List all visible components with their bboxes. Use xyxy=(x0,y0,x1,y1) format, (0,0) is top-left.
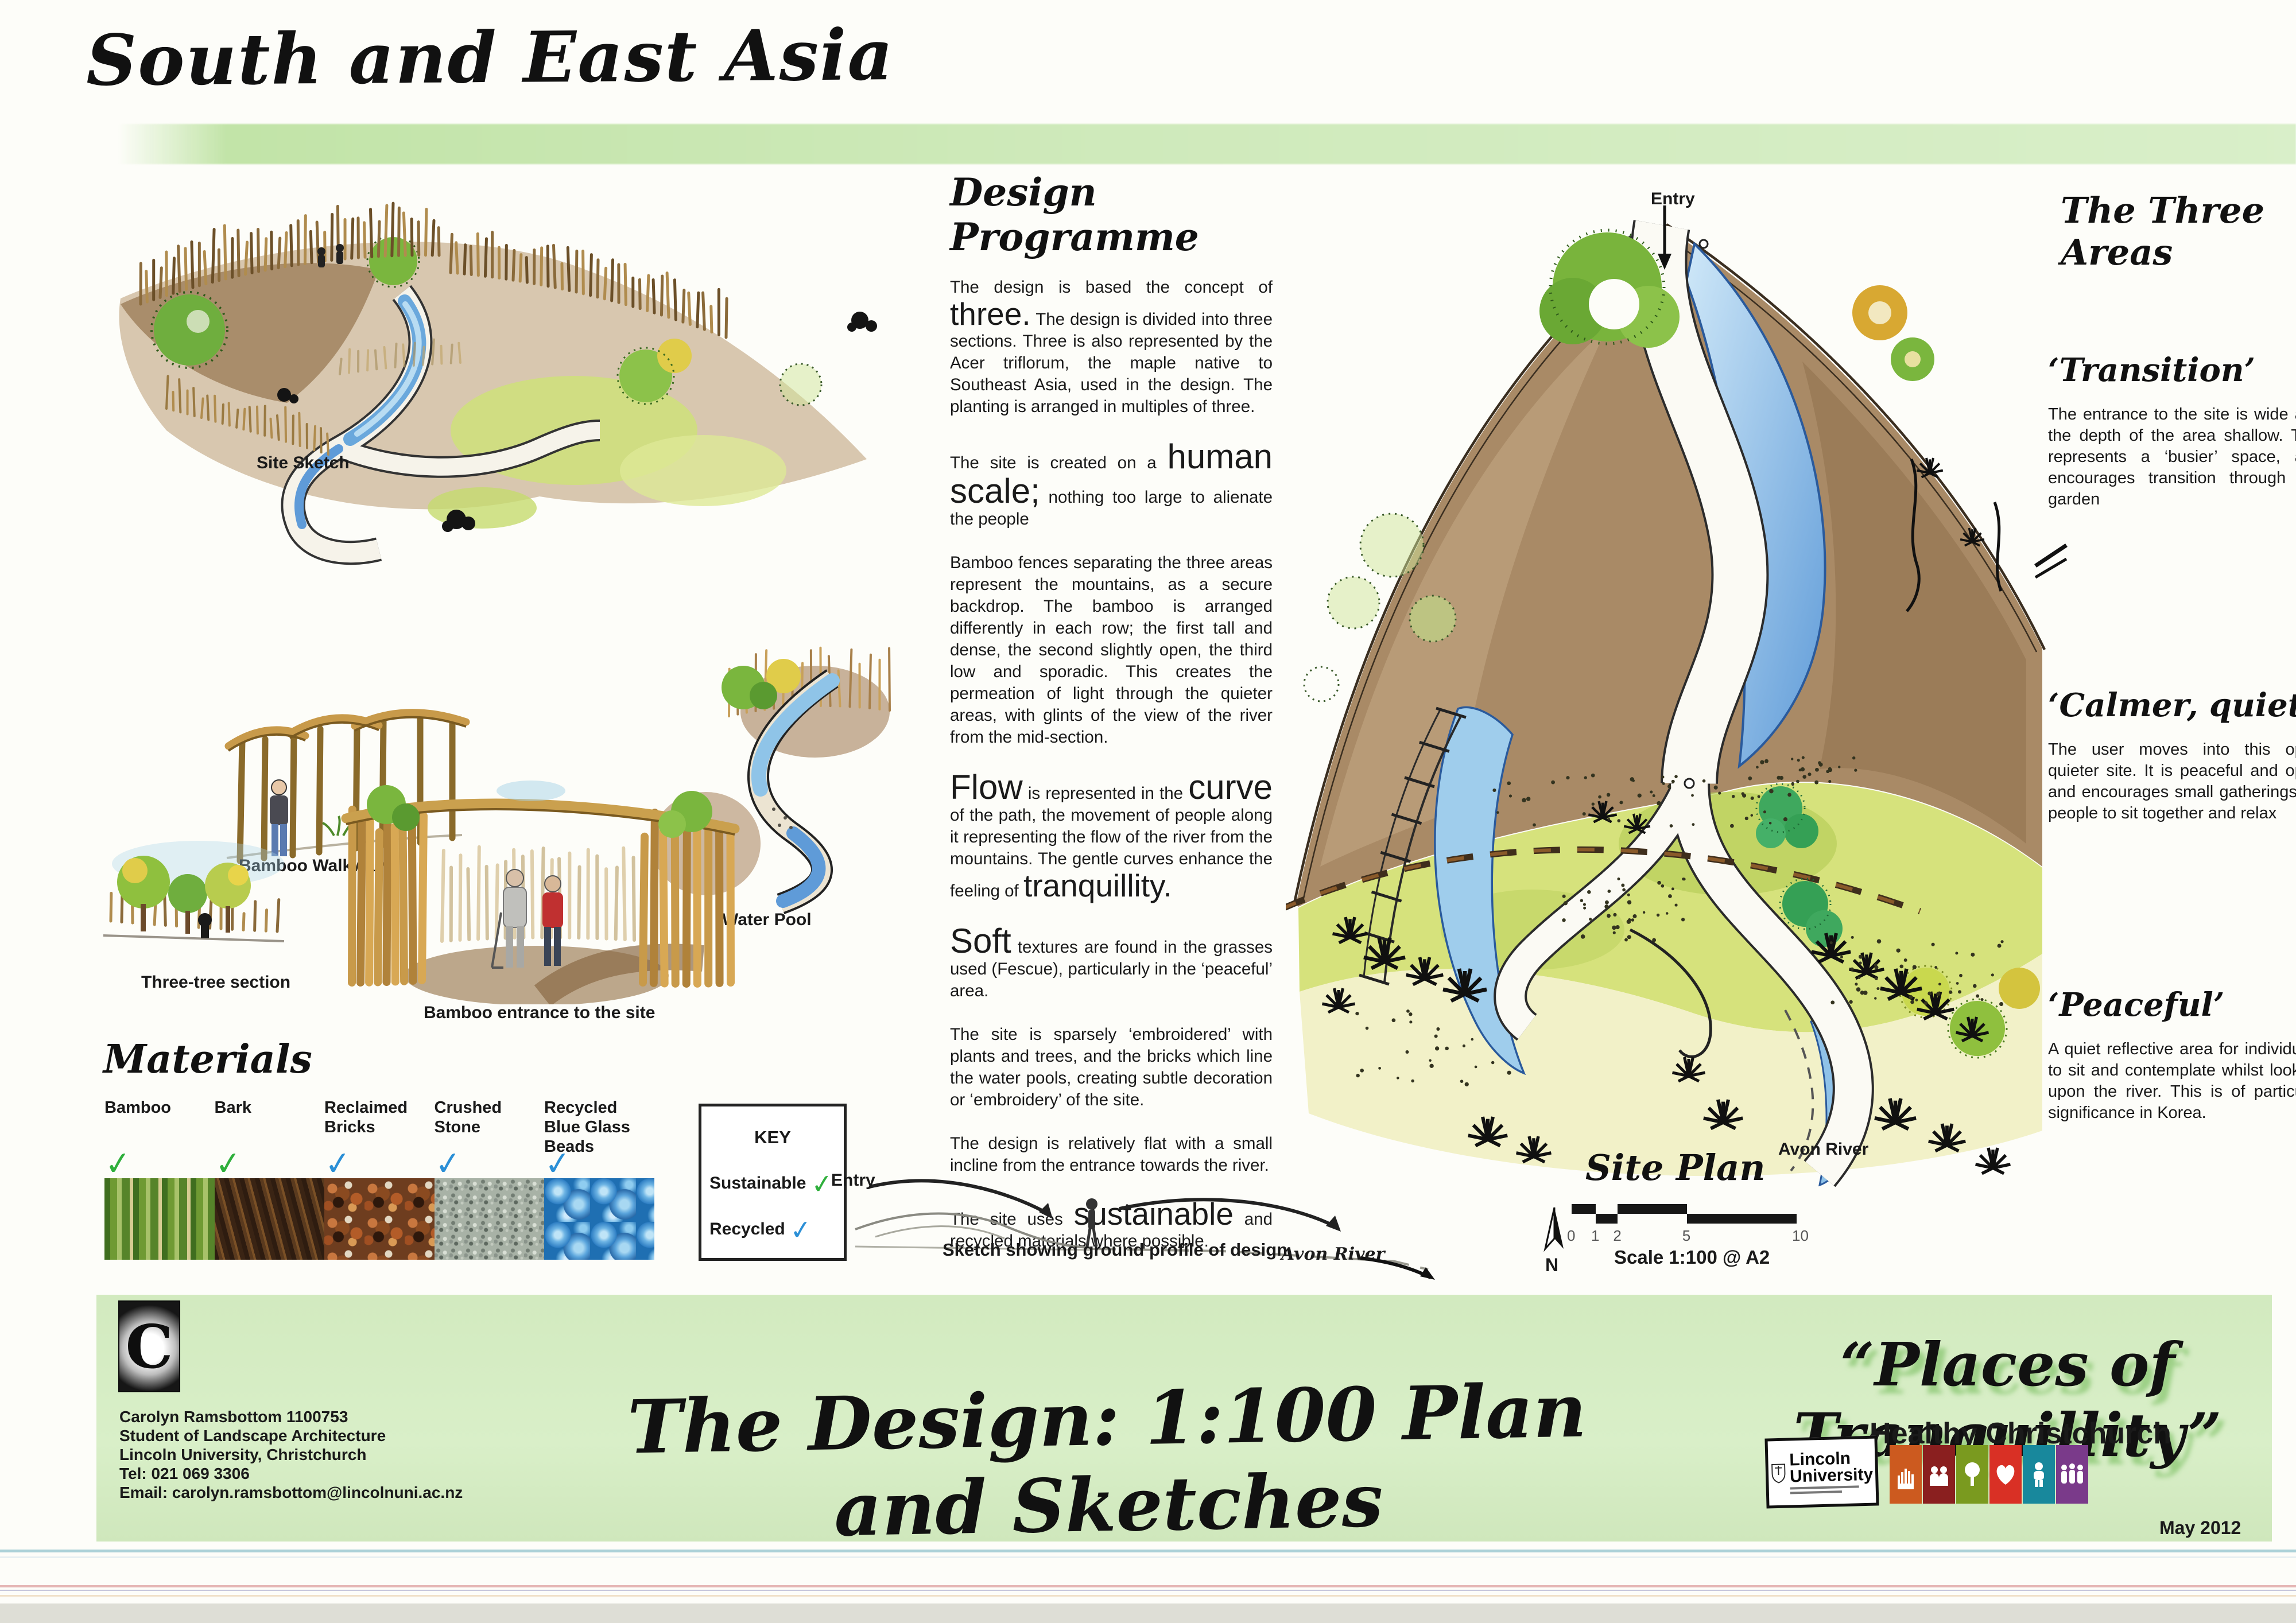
bamboo-stick xyxy=(193,388,195,416)
bamboo-stick xyxy=(327,434,328,455)
design-programme-heading: Design Programme xyxy=(950,170,1273,259)
bamboo-stick xyxy=(719,825,720,983)
logo-smallprint-bar xyxy=(1790,1485,1859,1489)
bamboo-stick xyxy=(468,869,469,939)
dp-paragraph-1: The design is based the concept of three… xyxy=(950,277,1273,418)
dp-paragraph-6: The site is sparsely ‘embroidered’ with … xyxy=(950,1024,1273,1111)
bamboo-stick xyxy=(385,205,387,256)
bamboo-stick xyxy=(661,276,662,315)
bamboo-stick xyxy=(160,268,161,298)
bamboo-stick xyxy=(697,822,697,983)
scan-strip xyxy=(0,1603,2296,1623)
bamboo-stick xyxy=(166,376,168,409)
bamboo-stick xyxy=(395,827,395,982)
bamboo-stick xyxy=(451,234,452,273)
bamboo-stick xyxy=(625,264,626,304)
healthy-christchurch-tiles xyxy=(1890,1445,2088,1504)
bamboo-stick xyxy=(258,229,259,271)
bamboo-stick xyxy=(238,230,239,276)
material-photo xyxy=(544,1178,654,1260)
bamboo-stick xyxy=(340,359,342,374)
bamboo-stick xyxy=(299,413,300,446)
bamboo-stick xyxy=(257,407,258,434)
children-icon xyxy=(2057,1459,2087,1489)
dp-big-flow: Flow xyxy=(950,768,1023,806)
profile-caption: Sketch showing ground profile of design xyxy=(943,1240,1287,1260)
bamboo-stick xyxy=(726,298,727,337)
header-green-band xyxy=(118,124,2296,164)
bamboo-stick xyxy=(604,268,606,299)
bamboo-stick xyxy=(478,847,479,939)
author-line: Carolyn Ramsbottom 1100753 xyxy=(119,1407,463,1426)
bamboo-stick xyxy=(332,214,332,260)
bamboo-stick xyxy=(179,246,180,292)
sustainable-check-icon: ✓ xyxy=(213,1135,327,1184)
bamboo-stick xyxy=(165,896,166,926)
bamboo-stick xyxy=(311,231,312,262)
dp-paragraph-5: Soft textures are found in the grasses u… xyxy=(950,924,1273,1002)
key-title: KEY xyxy=(701,1127,844,1148)
bamboo-stick xyxy=(697,293,699,327)
bamboo-stick xyxy=(265,239,266,270)
bamboo-stick xyxy=(352,219,353,258)
bamboo-stick xyxy=(598,260,598,297)
bamboo-stick xyxy=(459,343,460,363)
bamboo-stick xyxy=(562,263,563,289)
material-name: Crushed Stone xyxy=(435,1098,526,1140)
bamboo-stick xyxy=(623,848,625,939)
scan-line xyxy=(0,1556,2296,1558)
bamboo-stick xyxy=(442,851,444,941)
bamboo-stick xyxy=(255,902,255,930)
bamboo-stick xyxy=(689,293,691,324)
hc-tile-heart xyxy=(1989,1445,2022,1504)
bamboo-stick xyxy=(568,247,569,290)
scan-line xyxy=(0,1595,2296,1597)
bamboo-entrance-label: Bamboo entrance to the site xyxy=(424,1003,655,1023)
bamboo-stick xyxy=(870,655,871,708)
bamboo-stick xyxy=(687,820,687,984)
bamboo-stick xyxy=(643,837,645,983)
bamboo-stick xyxy=(478,234,478,275)
three-areas-heading: The Three Areas xyxy=(2061,189,2296,273)
bamboo-stick xyxy=(464,245,466,274)
university-name-line2: University xyxy=(1790,1466,1874,1485)
bamboo-stick xyxy=(683,290,684,323)
hand-icon xyxy=(1891,1459,1921,1489)
bamboo-stick xyxy=(418,222,419,255)
bamboo-stick xyxy=(229,403,230,425)
bamboo-stick xyxy=(243,409,245,430)
bamboo-stick xyxy=(378,832,379,982)
site-plan-title: Site Plan xyxy=(1585,1147,1765,1189)
material-name: Recycled Blue Glass Beads xyxy=(544,1098,636,1140)
bamboo-stick xyxy=(314,426,315,451)
materials-heading: Materials xyxy=(103,1036,312,1082)
material-name: Bamboo xyxy=(104,1098,196,1140)
bamboo-stick xyxy=(293,416,293,444)
bamboo-stick xyxy=(179,379,180,412)
area-title: ‘Peaceful’ xyxy=(2048,986,2296,1024)
material-column-bark: Bark✓ xyxy=(215,1098,325,1260)
bamboo-stick xyxy=(369,821,370,982)
profile-entry-label: Entry xyxy=(831,1171,875,1190)
bamboo-stick xyxy=(456,243,457,273)
bamboo-stick xyxy=(485,239,486,277)
university-shield-icon xyxy=(1770,1457,1786,1490)
bamboo-stick xyxy=(224,226,226,279)
bamboo-stick xyxy=(839,671,840,706)
bamboo-stick xyxy=(663,832,665,984)
bamboo-stick xyxy=(653,280,654,313)
scale-segment xyxy=(1618,1204,1686,1214)
bamboo-stick xyxy=(246,242,247,274)
author-line: Lincoln University, Christchurch xyxy=(119,1445,463,1464)
bamboo-stick xyxy=(321,428,321,452)
key-sustainable-row: Sustainable ✓ xyxy=(709,1168,833,1199)
design-programme-column: Design Programme The design is based the… xyxy=(950,170,1273,1274)
bamboo-stick xyxy=(215,396,215,422)
bamboo-stick xyxy=(402,826,404,981)
bamboo-stick xyxy=(889,648,890,710)
bamboo-stick xyxy=(576,251,577,292)
area-section-2: ‘Calmer, quiet’The user moves into this … xyxy=(2048,686,2296,824)
bamboo-stick xyxy=(166,252,167,296)
bamboo-stick xyxy=(654,813,655,983)
plan-entry-label: Entry xyxy=(1651,189,1695,209)
recycled-check-icon: ✓ xyxy=(323,1135,436,1184)
bamboo-stick xyxy=(375,350,377,369)
bamboo-stick xyxy=(111,893,111,921)
hc-tile-hand xyxy=(1890,1445,1922,1504)
bamboo-stick xyxy=(439,228,439,255)
bamboo-stick xyxy=(532,851,533,938)
bamboo-stick xyxy=(236,410,238,428)
bamboo-stick xyxy=(185,249,187,289)
bamboo-stick xyxy=(579,867,579,938)
bamboo-stick xyxy=(201,398,203,418)
bamboo-stick xyxy=(285,232,286,266)
avon-river-label: Avon River xyxy=(1778,1140,1868,1159)
scan-line xyxy=(0,1590,2296,1591)
bamboo-stick xyxy=(278,238,280,268)
site-sketch-drawing xyxy=(80,184,936,585)
author-logo-letter: C xyxy=(126,1311,173,1382)
spiky-plant xyxy=(1976,1148,2011,1174)
site-sketch-label: Site Sketch xyxy=(257,453,350,473)
logo-smallprint-bar xyxy=(1790,1490,1842,1494)
key-recycled-row: Recycled ✓ xyxy=(709,1214,812,1245)
date-label: May 2012 xyxy=(2159,1517,2241,1539)
bamboo-stick xyxy=(541,248,542,285)
ground-profile-drawing xyxy=(821,1159,1458,1297)
bamboo-stick xyxy=(451,345,452,363)
area-section-3: ‘Peaceful’A quiet reflective area for in… xyxy=(2048,986,2296,1124)
scale-tick-label: 1 xyxy=(1591,1227,1599,1245)
bamboo-stick xyxy=(298,221,298,265)
bamboo-stick xyxy=(146,271,148,302)
author-line: Student of Landscape Architecture xyxy=(119,1426,463,1445)
bamboo-stick xyxy=(291,226,292,266)
author-logo: C xyxy=(118,1300,180,1392)
material-name: Reclaimed Bricks xyxy=(324,1098,416,1140)
scale-tick-label: 5 xyxy=(1682,1227,1690,1245)
bamboo-stick xyxy=(266,910,266,931)
bamboo-stick xyxy=(277,416,279,440)
bamboo-stick xyxy=(674,280,676,320)
lincoln-university-logo: Lincoln University xyxy=(1764,1435,1879,1508)
bamboo-stick xyxy=(432,340,434,364)
bamboo-stick xyxy=(425,209,426,255)
bamboo-stick xyxy=(204,251,206,284)
bamboo-stick xyxy=(305,216,305,264)
north-n-label: N xyxy=(1545,1255,1558,1276)
site-plan-drawing xyxy=(1286,189,2049,1199)
bamboo-stick xyxy=(703,293,705,329)
bamboo-stick xyxy=(285,407,286,442)
dp-big-curve: curve xyxy=(1188,768,1273,806)
bamboo-stick xyxy=(378,222,379,257)
bamboo-stick xyxy=(432,220,434,255)
dp-paragraph-2: The site is created on a human scale; no… xyxy=(950,440,1273,530)
bamboo-stick xyxy=(471,246,471,274)
material-photo xyxy=(324,1178,435,1260)
bamboo-stick xyxy=(272,232,272,269)
dp-big-three: three. xyxy=(950,296,1031,332)
scale-segment xyxy=(1572,1204,1596,1214)
bamboo-stick xyxy=(349,350,350,373)
area-body: The user moves into this open quieter si… xyxy=(2048,739,2296,824)
material-column-bamboo: Bamboo✓ xyxy=(104,1098,215,1260)
bamboo-stick xyxy=(591,255,592,296)
bamboo-stick xyxy=(243,914,244,930)
three-tree-label: Three-tree section xyxy=(141,973,290,992)
area-body: A quiet reflective area for individuals … xyxy=(2048,1039,2296,1124)
author-line: Email: carolyn.ramsbottom@lincolnuni.ac.… xyxy=(119,1483,463,1502)
bamboo-stick xyxy=(497,865,498,938)
bamboo-stick xyxy=(647,275,649,310)
bamboo-stick xyxy=(371,209,372,257)
bamboo-stick xyxy=(583,251,584,293)
scale-segment xyxy=(1596,1214,1618,1224)
key-sustainable-label: Sustainable xyxy=(709,1174,806,1193)
bamboo-stick xyxy=(384,347,386,368)
bamboo-stick xyxy=(667,273,669,317)
material-photo xyxy=(215,1178,325,1260)
sustainable-check-icon: ✓ xyxy=(103,1135,216,1184)
north-arrow-icon xyxy=(1534,1204,1574,1256)
family-icon xyxy=(1924,1459,1954,1489)
author-block: Carolyn Ramsbottom 1100753Student of Lan… xyxy=(119,1407,463,1502)
bamboo-stick xyxy=(422,816,424,980)
bamboo-stick xyxy=(399,208,400,255)
recycled-check-icon: ✓ xyxy=(433,1135,546,1184)
bamboo-stick xyxy=(212,230,214,282)
bamboo-stick xyxy=(441,346,442,364)
material-column-reclaimed-bricks: Reclaimed Bricks✓ xyxy=(324,1098,435,1260)
bamboo-stick xyxy=(392,203,393,256)
material-column-crushed-stone: Crushed Stone✓ xyxy=(435,1098,545,1260)
bamboo-stick xyxy=(173,258,174,293)
bamboo-stick xyxy=(414,343,415,366)
area-body: The entrance to the site is wide and the… xyxy=(2048,404,2296,510)
bamboo-entrance-drawing xyxy=(336,769,743,1004)
bamboo-stick xyxy=(460,855,460,940)
scale-tick-label: 2 xyxy=(1613,1227,1621,1245)
bamboo-stick xyxy=(412,814,413,981)
area-section-1: ‘Transition’The entrance to the site is … xyxy=(2048,351,2296,510)
bamboo-stick xyxy=(360,814,362,983)
bamboo-stick xyxy=(387,821,388,982)
dp-big-soft: Soft xyxy=(950,922,1011,960)
bamboo-stick xyxy=(506,245,507,279)
dp-paragraph-4: Flow is represented in the curve of the … xyxy=(950,770,1273,902)
poster-scan: South and East Asia xyxy=(0,0,2296,1623)
bamboo-stick xyxy=(553,245,555,288)
bamboo-stick xyxy=(403,344,404,366)
bamboo-stick xyxy=(192,242,193,288)
bamboo-stick xyxy=(364,223,365,257)
bamboo-stick xyxy=(277,900,279,931)
heart-icon xyxy=(1991,1459,2020,1489)
bamboo-stick xyxy=(173,392,174,410)
bamboo-stick xyxy=(675,833,676,984)
bamboo-stick xyxy=(513,250,514,280)
bamboo-stick xyxy=(639,279,640,308)
footer-main-title: The Design: 1:100 Plan and Sketches xyxy=(544,1366,1672,1558)
bamboo-stick xyxy=(548,246,548,286)
bamboo-stick xyxy=(616,867,617,939)
scan-line xyxy=(0,1550,2296,1552)
hc-tile-children xyxy=(2056,1445,2088,1504)
tree-icon xyxy=(1957,1459,1987,1489)
hc-tile-tree xyxy=(1956,1445,1988,1504)
bamboo-stick xyxy=(352,810,352,983)
bamboo-stick xyxy=(520,255,521,281)
scale-tick-label: 10 xyxy=(1792,1227,1809,1245)
bamboo-stick xyxy=(404,213,405,255)
scan-line xyxy=(0,1585,2296,1587)
bamboo-stick xyxy=(207,395,208,420)
three-tree-drawing xyxy=(95,829,296,964)
profile-avon-river-label: Avon River xyxy=(1281,1244,1384,1264)
author-line: Tel: 021 069 3306 xyxy=(119,1464,463,1483)
key-recycled-label: Recycled xyxy=(709,1220,785,1238)
page-title: South and East Asia xyxy=(86,13,895,102)
hc-tile-family xyxy=(1923,1445,1955,1504)
bamboo-stick xyxy=(423,347,424,365)
bamboo-stick xyxy=(412,219,412,255)
bamboo-stick xyxy=(251,234,252,273)
bamboo-stick xyxy=(711,306,712,332)
material-photo xyxy=(435,1178,545,1260)
bamboo-stick xyxy=(250,407,251,432)
bamboo-stick xyxy=(265,406,265,436)
bamboo-stick xyxy=(634,857,634,940)
transition-arrow-icon xyxy=(2031,539,2071,591)
person-icon xyxy=(2024,1459,2054,1489)
recycled-check-icon: ✓ xyxy=(788,1213,813,1247)
bamboo-stick xyxy=(223,405,223,424)
material-column-recycled-blue-glass-beads: Recycled Blue Glass Beads✓ xyxy=(544,1098,654,1260)
material-name: Bark xyxy=(215,1098,307,1140)
material-photo xyxy=(104,1178,215,1260)
bamboo-stick xyxy=(612,260,613,301)
scale-segment xyxy=(1687,1214,1797,1224)
bamboo-stick xyxy=(395,344,396,367)
bamboo-stick xyxy=(367,350,368,370)
area-title: ‘Calmer, quiet’ xyxy=(2048,686,2296,724)
dp-big-tranquillity: tranquillity. xyxy=(1023,868,1172,903)
bamboo-stick xyxy=(317,222,318,262)
dp-paragraph-3: Bamboo fences separating the three areas… xyxy=(950,552,1273,748)
bamboo-stick xyxy=(271,419,272,438)
hc-tile-person xyxy=(2023,1445,2055,1504)
scale-caption: Scale 1:100 @ A2 xyxy=(1614,1247,1770,1268)
bamboo-stick xyxy=(526,258,527,282)
bamboo-stick xyxy=(487,867,487,939)
area-title: ‘Transition’ xyxy=(2048,351,2296,389)
